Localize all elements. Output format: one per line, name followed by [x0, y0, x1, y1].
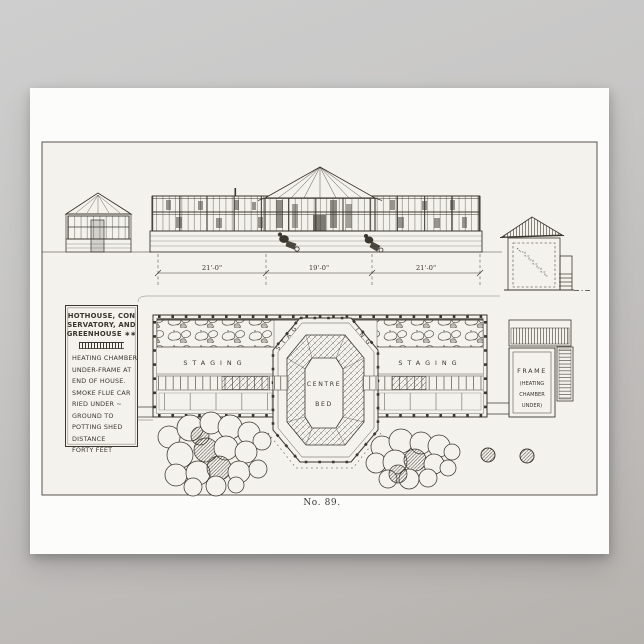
note-line: FORTY FEET: [66, 445, 137, 457]
staging-label-right: STAGING: [398, 359, 461, 367]
note-line: RIED UNDER ~: [66, 399, 137, 411]
dim-label-right: 21'-0": [416, 264, 436, 272]
small-bush-2: [520, 449, 534, 463]
dim-label-left: 21'-0": [202, 264, 222, 272]
plan-octagon-conservatory: STAG ING CENTRE BED: [268, 318, 381, 468]
frame-label-line2: CHAMBER: [519, 392, 545, 398]
gray-backdrop: 21'-0" 19'-0" 21'-0": [0, 0, 644, 644]
title-note-box: HOTHOUSE, CON SERVATORY, AND GREENHOUSE …: [65, 305, 138, 447]
dim-label-center: 19'-0": [309, 264, 329, 272]
note-line: UNDER-FRAME AT: [66, 365, 137, 377]
small-bush-1: [481, 448, 495, 462]
note-line: HEATING CHAMBER: [66, 353, 137, 365]
centre-bed-label-line2: BED: [315, 401, 333, 408]
note-line: POTTING SHED: [66, 422, 137, 434]
frame-label-line3: UNDER): [522, 403, 542, 409]
plate-caption: No. 89.: [272, 498, 372, 508]
title-line: HOTHOUSE, CON: [66, 312, 137, 321]
note-line: DISTANCE: [66, 434, 137, 446]
note-line: SMOKE FLUE CAR: [66, 388, 137, 400]
poster-print: 21'-0" 19'-0" 21'-0": [30, 88, 609, 554]
roof-finial: [235, 188, 237, 196]
staging-label-left: STAGING: [183, 359, 246, 367]
frame-label-line1: (HEATING: [520, 381, 545, 387]
note-line: GROUND TO: [66, 411, 137, 423]
title-line: SERVATORY, AND: [66, 321, 137, 330]
note-line: END OF HOUSE.: [66, 376, 137, 388]
title-line: GREENHOUSE ∗∗: [66, 330, 137, 339]
frame-label-line0: FRAME: [517, 367, 547, 375]
centre-bed-label-line1: CENTRE: [307, 381, 341, 388]
scroll-divider: [79, 342, 124, 349]
